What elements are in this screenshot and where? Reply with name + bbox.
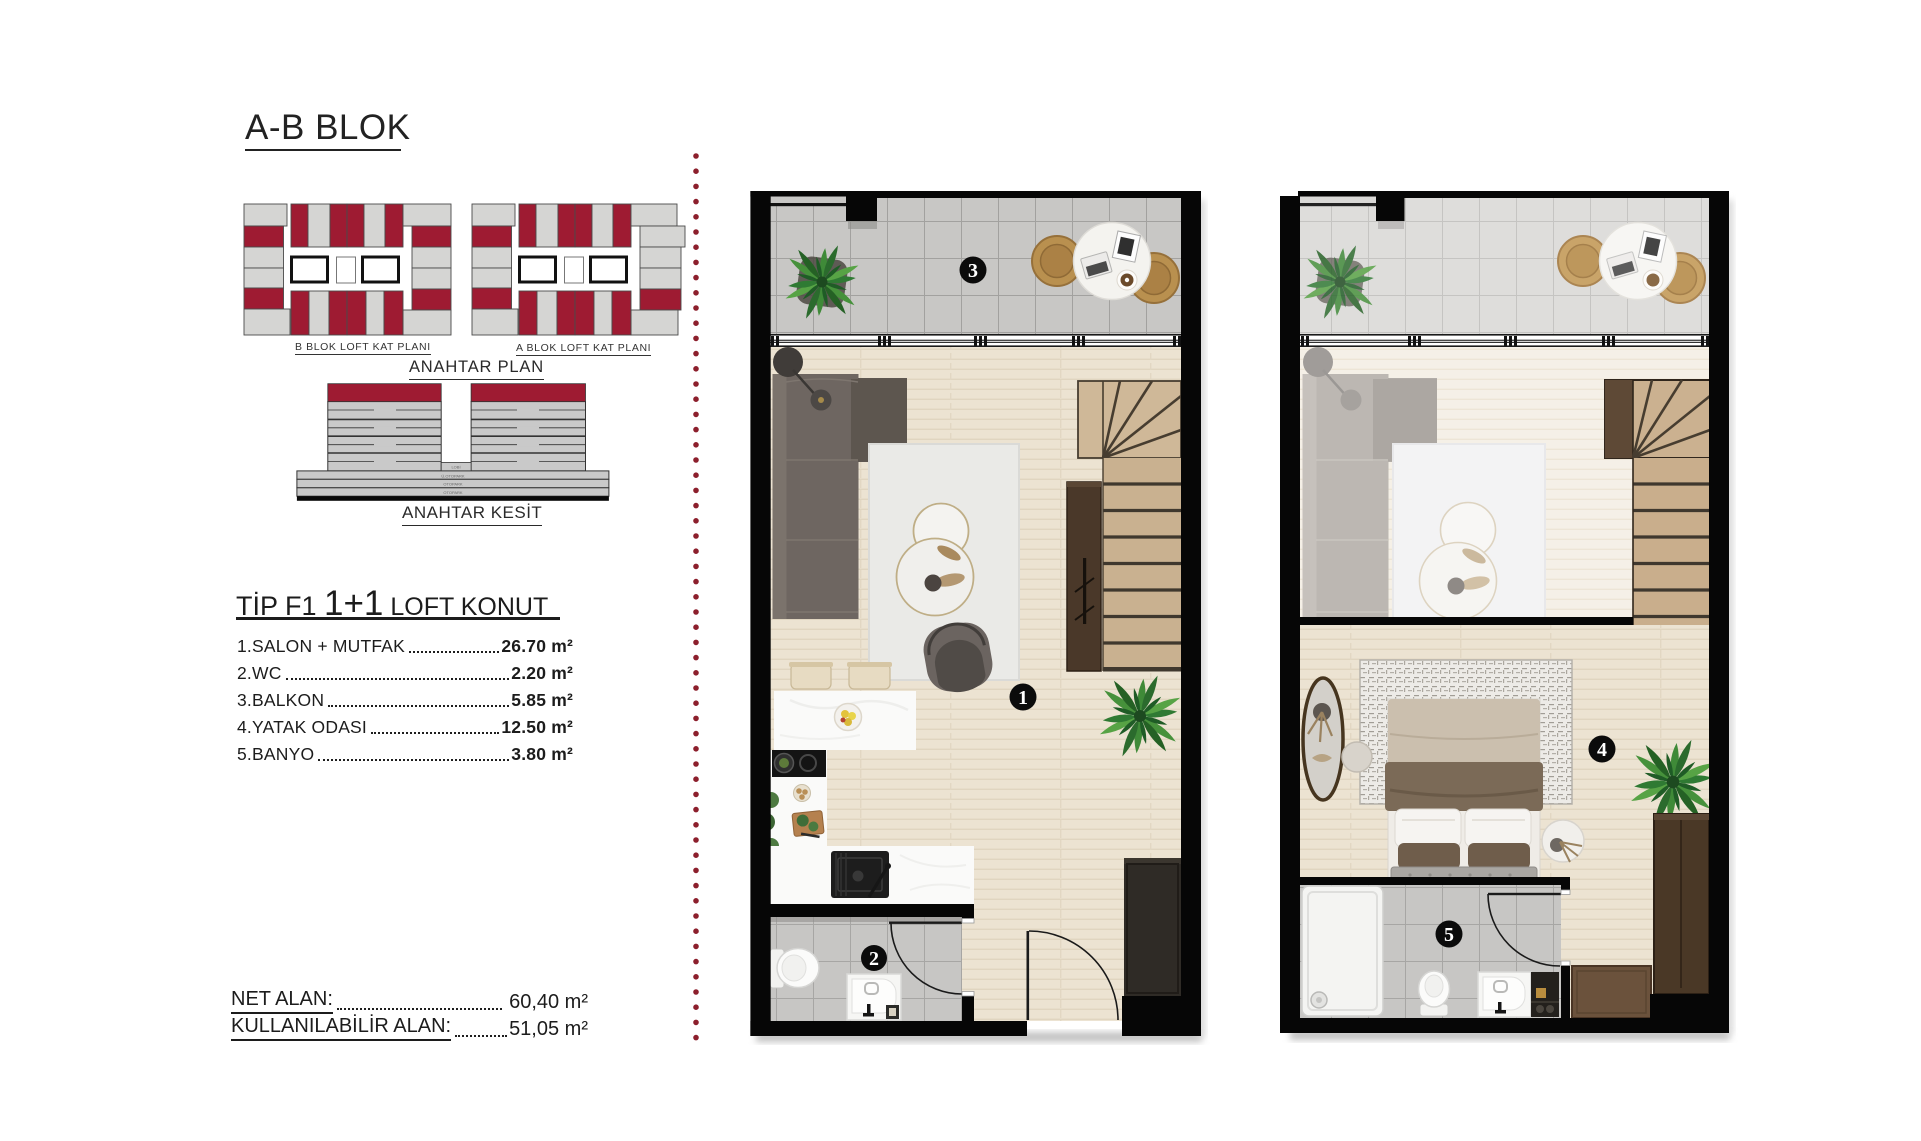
svg-text:5: 5 — [1444, 924, 1454, 946]
svg-text:1: 1 — [1018, 687, 1028, 709]
svg-text:2: 2 — [869, 948, 879, 970]
svg-text:3: 3 — [968, 260, 978, 282]
svg-text:4: 4 — [1597, 739, 1607, 761]
